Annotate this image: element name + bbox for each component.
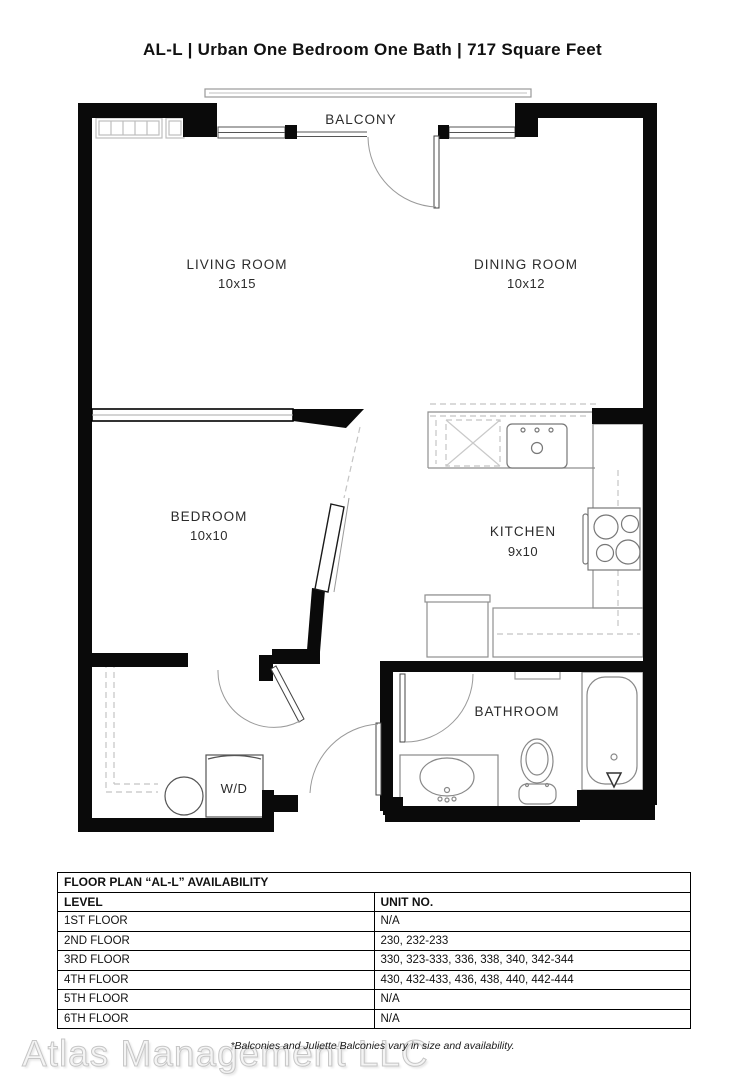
units-cell: 330, 323-333, 336, 338, 340, 342-344 <box>374 951 691 971</box>
table-row: 5TH FLOOR N/A <box>58 990 691 1010</box>
column-header-unit-no: UNIT NO. <box>374 892 691 912</box>
balcony-door <box>368 136 439 208</box>
table-row: 2ND FLOOR 230, 232-233 <box>58 931 691 951</box>
units-cell: N/A <box>374 990 691 1010</box>
table-title: FLOOR PLAN “AL-L” AVAILABILITY <box>58 873 691 893</box>
table-row: 6TH FLOOR N/A <box>58 1009 691 1029</box>
balcony-door-sidelite <box>297 132 367 137</box>
units-cell: 230, 232-233 <box>374 931 691 951</box>
water-heater-icon <box>165 777 203 815</box>
bedroom-dims: 10x10 <box>190 528 228 543</box>
baseboard-heater <box>96 118 184 138</box>
closet-dashed <box>106 662 158 792</box>
vanity-sink-icon <box>400 755 498 807</box>
level-cell: 5TH FLOOR <box>58 990 375 1010</box>
floor-plan-drawing: BALCONY LIVING ROOM 10x15 DINING ROOM 10… <box>0 0 745 860</box>
footnote: *Balconies and Juliette Balconies vary i… <box>0 1040 745 1052</box>
table-row: 1ST FLOOR N/A <box>58 912 691 932</box>
kitchen-label: KITCHEN <box>490 524 556 539</box>
balcony-window-right <box>449 127 515 138</box>
doors <box>218 136 473 795</box>
level-cell: 6TH FLOOR <box>58 1009 375 1029</box>
entry-door <box>310 723 381 795</box>
floor-plan-flyer: AL-L | Urban One Bedroom One Bath | 717 … <box>0 0 745 1080</box>
bathroom-door <box>400 674 473 742</box>
availability-table: FLOOR PLAN “AL-L” AVAILABILITY LEVEL UNI… <box>57 872 691 1029</box>
table-row: 3RD FLOOR 330, 323-333, 336, 338, 340, 3… <box>58 951 691 971</box>
dining-room-dims: 10x12 <box>507 276 545 291</box>
dishwasher <box>446 420 500 466</box>
units-cell: 430, 432-433, 436, 438, 440, 442-444 <box>374 970 691 990</box>
column-header-level: LEVEL <box>58 892 375 912</box>
hollow-wall <box>92 409 293 421</box>
living-room-label: LIVING ROOM <box>186 257 287 272</box>
toilet-icon <box>519 739 556 804</box>
level-cell: 2ND FLOOR <box>58 931 375 951</box>
table-header-row: LEVEL UNIT NO. <box>58 892 691 912</box>
windows <box>218 127 515 138</box>
balcony-window-left <box>218 127 285 138</box>
units-cell: N/A <box>374 912 691 932</box>
kitchen-sink <box>507 424 567 468</box>
range-stove-icon <box>583 508 640 570</box>
refrigerator-icon <box>425 595 490 657</box>
level-cell: 4TH FLOOR <box>58 970 375 990</box>
bathroom-label: BATHROOM <box>475 704 560 719</box>
level-cell: 1ST FLOOR <box>58 912 375 932</box>
bedroom-label: BEDROOM <box>171 509 248 524</box>
balcony-label: BALCONY <box>325 112 397 127</box>
table-row: 4TH FLOOR 430, 432-433, 436, 438, 440, 4… <box>58 970 691 990</box>
bathtub-icon <box>582 672 643 790</box>
dining-room-label: DINING ROOM <box>474 257 578 272</box>
level-cell: 3RD FLOOR <box>58 951 375 971</box>
wd-label: W/D <box>221 781 248 796</box>
table-title-row: FLOOR PLAN “AL-L” AVAILABILITY <box>58 873 691 893</box>
kitchen-dims: 9x10 <box>508 544 538 559</box>
balcony-railing <box>205 89 531 97</box>
living-room-dims: 10x15 <box>218 276 256 291</box>
units-cell: N/A <box>374 1009 691 1029</box>
sliding-door <box>315 427 360 592</box>
